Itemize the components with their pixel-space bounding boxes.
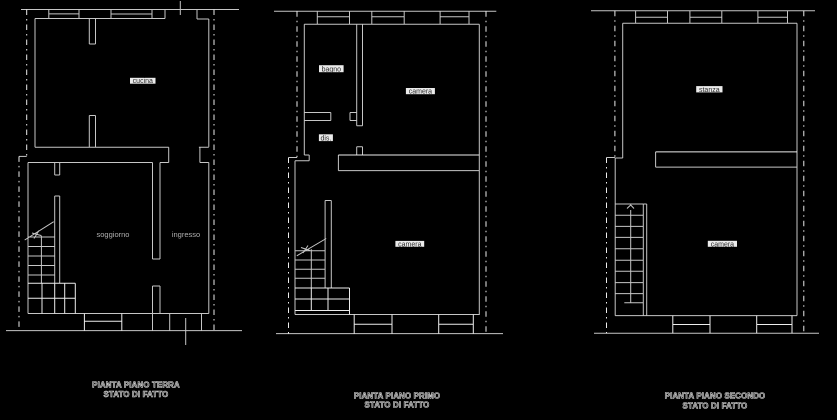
svg-text:ingresso: ingresso [172,230,200,239]
svg-text:camera: camera [398,241,421,248]
svg-text:cucina: cucina [133,78,153,85]
svg-text:PIANTA PIANO TERRA: PIANTA PIANO TERRA [92,381,180,390]
svg-text:stanza: stanza [699,87,720,94]
svg-text:camera: camera [711,241,734,248]
svg-text:STATO DI FATTO: STATO DI FATTO [104,390,169,399]
svg-text:PIANTA PIANO PRIMO: PIANTA PIANO PRIMO [354,391,440,400]
svg-text:camera: camera [409,89,432,96]
svg-text:soggiorno: soggiorno [97,230,130,239]
svg-text:PIANTA PIANO SECONDO: PIANTA PIANO SECONDO [665,392,766,401]
svg-text:bagno: bagno [322,67,342,74]
svg-text:dis.: dis. [320,136,331,143]
svg-text:STATO DI FATTO: STATO DI FATTO [683,402,748,411]
svg-text:STATO DI FATTO: STATO DI FATTO [365,401,430,410]
